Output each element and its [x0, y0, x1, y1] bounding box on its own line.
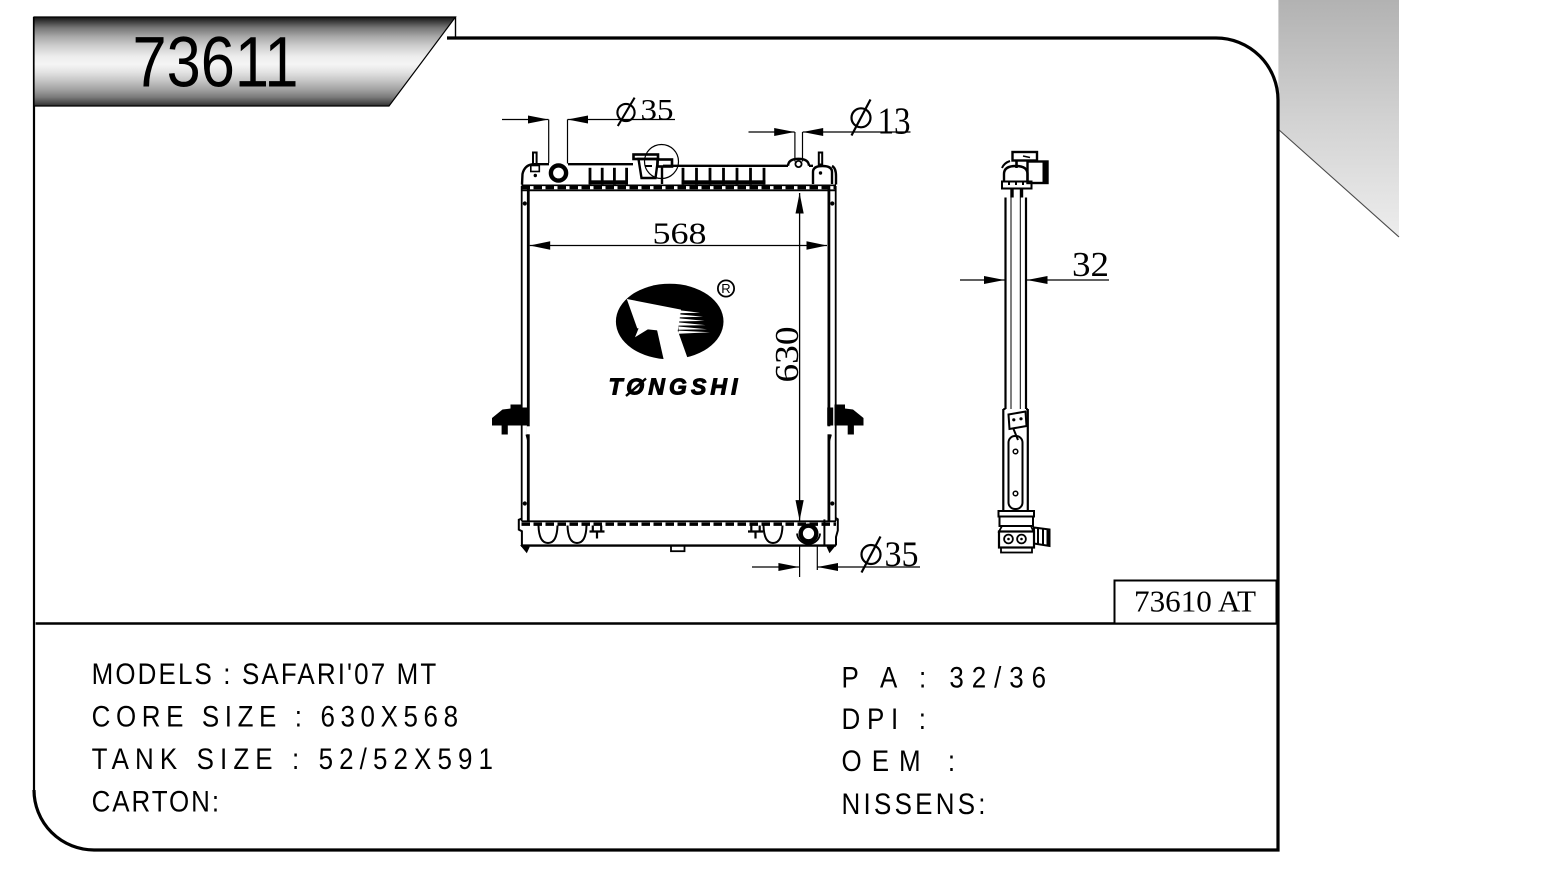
svg-text:13: 13	[878, 100, 911, 142]
svg-text:568: 568	[653, 216, 707, 251]
svg-text:CARTON:: CARTON:	[92, 785, 219, 818]
svg-text:MODELS : SAFARI'07 MT: MODELS : SAFARI'07 MT	[92, 657, 437, 690]
svg-text:OEM :: OEM :	[842, 744, 956, 777]
svg-text:TANK SIZE : 52/52X591: TANK SIZE : 52/52X591	[92, 742, 493, 775]
svg-text:DPI :: DPI :	[842, 703, 926, 736]
svg-text:35: 35	[885, 534, 919, 574]
svg-text:32: 32	[1072, 245, 1109, 284]
svg-text:R: R	[721, 281, 730, 296]
svg-text:P A : 32/36: P A : 32/36	[842, 661, 1047, 694]
svg-text:NISSENS:: NISSENS:	[842, 787, 986, 820]
svg-text:73610 AT: 73610 AT	[1134, 584, 1256, 619]
svg-text:630: 630	[769, 327, 806, 383]
svg-text:35: 35	[641, 93, 674, 126]
svg-text:CORE SIZE : 630X568: CORE SIZE : 630X568	[92, 700, 458, 733]
svg-text:73611: 73611	[133, 24, 299, 103]
